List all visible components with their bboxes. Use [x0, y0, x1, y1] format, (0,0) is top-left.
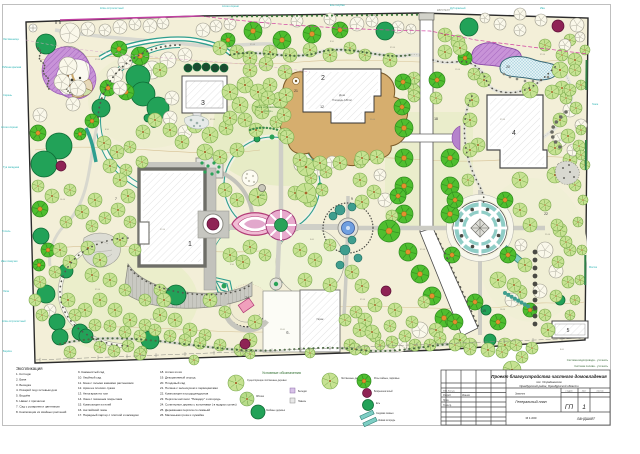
- svg-text:лист: лист: [582, 391, 587, 393]
- svg-text:Беседки: Беседки: [298, 391, 308, 393]
- svg-text:37.00: 37.00: [420, 249, 426, 251]
- svg-text:ЕВРОТЕХН: ЕВРОТЕХН: [437, 9, 450, 12]
- svg-text:8. Композиция из хвойных расте: 8. Композиция из хвойных растений: [16, 410, 67, 414]
- svg-text:37.00: 37.00: [360, 299, 366, 301]
- svg-text:17. Парадный партер с плиткой: 17. Парадный партер с плиткой и каскадом: [78, 413, 139, 417]
- svg-text:Система водопровода - уточни: Система водопровода - уточнить: [567, 358, 609, 362]
- svg-text:Экспликация: Экспликация: [16, 366, 43, 371]
- svg-text:Ива плакучая: Ива плакучая: [1, 259, 18, 263]
- svg-text:37.00: 37.00: [250, 44, 256, 46]
- svg-text:Пров.: Пров.: [443, 400, 449, 402]
- svg-text:Проект благоустройства частног: Проект благоустройства частного домовлад…: [491, 374, 607, 379]
- svg-text:Условные обозначения: Условные обозначения: [262, 371, 301, 375]
- svg-text:37.00: 37.00: [390, 47, 396, 49]
- svg-text:Аллея сирени: Аллея сирени: [1, 125, 18, 129]
- svg-text:Площадь 189 м²: Площадь 189 м²: [332, 98, 352, 102]
- svg-text:2: 2: [321, 75, 325, 82]
- svg-text:24. Солитерное дерево с колонн: 24. Солитерное дерево с колоннами ( в му…: [160, 402, 237, 406]
- svg-text:20: 20: [506, 65, 510, 69]
- svg-text:Живая изгородь: Живая изгородь: [378, 420, 396, 422]
- svg-text:Тополь: Тополь: [2, 229, 11, 233]
- svg-text:Туя западная: Туя западная: [3, 165, 20, 169]
- svg-text:22: 22: [544, 212, 548, 216]
- svg-text:2. Баня: 2. Баня: [16, 377, 27, 381]
- svg-text:5. Водоём: 5. Водоём: [16, 394, 30, 398]
- svg-text:18. Аллея из ив: 18. Аллея из ив: [160, 370, 182, 374]
- svg-text:21: 21: [294, 89, 298, 93]
- svg-text:6. Навес с причалом: 6. Навес с причалом: [16, 399, 45, 403]
- svg-text:12. Арка на плоских лужах: 12. Арка на плоских лужах: [78, 386, 116, 390]
- svg-text:16.00: 16.00: [500, 309, 506, 311]
- svg-text:газон: газон: [259, 194, 266, 197]
- svg-text:стадия: стадия: [566, 391, 574, 393]
- svg-text:9. Каменистый сад: 9. Каменистый сад: [78, 370, 105, 374]
- svg-text:Клён остролистный: Клён остролистный: [100, 6, 124, 10]
- svg-text:Липа: Липа: [3, 289, 10, 293]
- svg-text:4. Розарий под гостевым дом: 4. Розарий под гостевым дом: [16, 388, 57, 392]
- svg-text:Навесы: Навесы: [298, 401, 307, 403]
- svg-text:20. Плодовый сад: 20. Плодовый сад: [160, 381, 185, 385]
- svg-text:Н.контр.: Н.контр.: [443, 405, 452, 407]
- svg-text:М 1:200: М 1:200: [526, 416, 537, 420]
- svg-text:21. Поляна с зеленчуком и перв: 21. Поляна с зеленчуком и первоцветами: [160, 386, 218, 390]
- svg-text:25. Деревянная пергола со скам: 25. Деревянная пергола со скамьёй: [160, 408, 210, 412]
- svg-text:9: 9: [351, 197, 353, 201]
- svg-text:42.50: 42.50: [165, 47, 171, 49]
- svg-text:37.00: 37.00: [540, 54, 546, 56]
- svg-text:37.00: 37.00: [150, 319, 156, 321]
- svg-text:14.00: 14.00: [60, 199, 66, 201]
- svg-text:Кол.уч.: Кол.уч.: [448, 391, 456, 393]
- svg-text:25.00: 25.00: [370, 119, 376, 121]
- svg-text:Сирень: Сирень: [3, 93, 13, 97]
- svg-text:ЛАНДШАФТ: ЛАНДШАФТ: [576, 417, 596, 421]
- svg-text:14. Зона с газонным покрытием: 14. Зона с газонным покрытием: [78, 397, 122, 401]
- svg-text:Дом: Дом: [339, 93, 345, 97]
- svg-text:7: 7: [115, 197, 117, 201]
- svg-text:1. Коттедж: 1. Коттедж: [16, 372, 31, 376]
- svg-text:37.00: 37.00: [500, 119, 506, 121]
- svg-text:Разраб.: Разраб.: [443, 395, 452, 397]
- svg-text:5: 5: [567, 328, 570, 334]
- svg-text:37.00: 37.00: [210, 119, 216, 121]
- svg-text:23. Пергола-частокол "Пикадор": 23. Пергола-частокол "Пикадор" и изгород…: [160, 397, 221, 401]
- svg-text:37.00: 37.00: [430, 329, 436, 331]
- svg-text:Садовая скамья: Садовая скамья: [376, 413, 394, 415]
- svg-text:Существующие лиственные деревь: Существующие лиственные деревья: [247, 380, 287, 382]
- svg-text:6.: 6.: [286, 330, 290, 335]
- svg-text:15. Композиция из елей: 15. Композиция из елей: [78, 402, 112, 406]
- svg-text:19: 19: [482, 309, 486, 313]
- svg-text:Газон из травосмеси: Газон из травосмеси: [256, 105, 281, 109]
- svg-text:19. Декоративный огород: 19. Декоративный огород: [160, 375, 196, 379]
- svg-text:Мостик: Мостик: [589, 266, 598, 269]
- svg-text:Генеральный план: Генеральный план: [515, 400, 546, 404]
- svg-text:24: 24: [245, 296, 249, 300]
- svg-text:Дуб красный: Дуб красный: [450, 6, 466, 10]
- svg-text:37.00: 37.00: [95, 289, 101, 291]
- svg-text:Гараж: Гараж: [317, 318, 324, 321]
- svg-text:21.00: 21.00: [545, 234, 551, 236]
- svg-text:11. Зона с голыми камнями раст: 11. Зона с голыми камнями растениями: [78, 381, 134, 385]
- svg-text:листов: листов: [597, 391, 605, 393]
- svg-text:7. Сад с розарием и цветником: 7. Сад с розарием и цветником: [16, 404, 60, 408]
- svg-text:13. Автогараж на том: 13. Автогараж на том: [78, 392, 108, 396]
- svg-text:Газон: Газон: [592, 103, 599, 106]
- svg-text:3. Беседка: 3. Беседка: [16, 383, 31, 387]
- svg-text:26. Маленькая гроза и лужайка: 26. Маленькая гроза и лужайка: [160, 413, 204, 417]
- svg-text:Заказчик: Заказчик: [515, 393, 526, 396]
- svg-text:16. Английский газон: 16. Английский газон: [78, 408, 107, 412]
- svg-text:18: 18: [434, 117, 438, 121]
- svg-text:Клён остролистный: Клён остролистный: [2, 319, 26, 323]
- svg-text:37.00: 37.00: [95, 59, 101, 61]
- svg-text:Лиственница: Лиственница: [3, 37, 19, 41]
- svg-text:Аллея сирени: Аллея сирени: [222, 4, 239, 8]
- svg-text:1: 1: [582, 404, 586, 411]
- svg-text:Боярышник алый: Боярышник алый: [374, 390, 393, 393]
- svg-text:Рябина красная: Рябина красная: [2, 65, 22, 69]
- svg-text:Ива: Ива: [540, 6, 545, 10]
- svg-text:Ель голубая: Ель голубая: [330, 3, 345, 7]
- svg-text:Хвойные деревья: Хвойные деревья: [266, 409, 286, 412]
- svg-text:Яблони: Яблони: [256, 396, 265, 398]
- svg-text:22. Композиция из рододендроно: 22. Композиция из рододендронов: [160, 392, 209, 396]
- svg-text:3: 3: [201, 100, 205, 107]
- svg-text:37.00: 37.00: [160, 229, 166, 231]
- svg-text:ГП: ГП: [565, 404, 574, 411]
- svg-text:Иванов: Иванов: [462, 395, 471, 397]
- svg-text:«Спорт»: «Спорт»: [263, 110, 273, 113]
- svg-text:12: 12: [320, 105, 324, 109]
- svg-text:12.00: 12.00: [455, 69, 461, 71]
- svg-text:Система полива - уточнить: Система полива - уточнить: [574, 364, 608, 368]
- svg-text:4: 4: [512, 130, 516, 137]
- svg-text:10. Хвойный сад: 10. Хвойный сад: [78, 375, 101, 379]
- svg-text:Розы чайные, парковые: Розы чайные, парковые: [374, 377, 400, 380]
- svg-text:1: 1: [188, 241, 192, 248]
- svg-text:Берёза: Берёза: [3, 349, 12, 353]
- svg-text:Оренбургский район, Оренбургск: Оренбургский район, Оренбургской области: [519, 384, 579, 388]
